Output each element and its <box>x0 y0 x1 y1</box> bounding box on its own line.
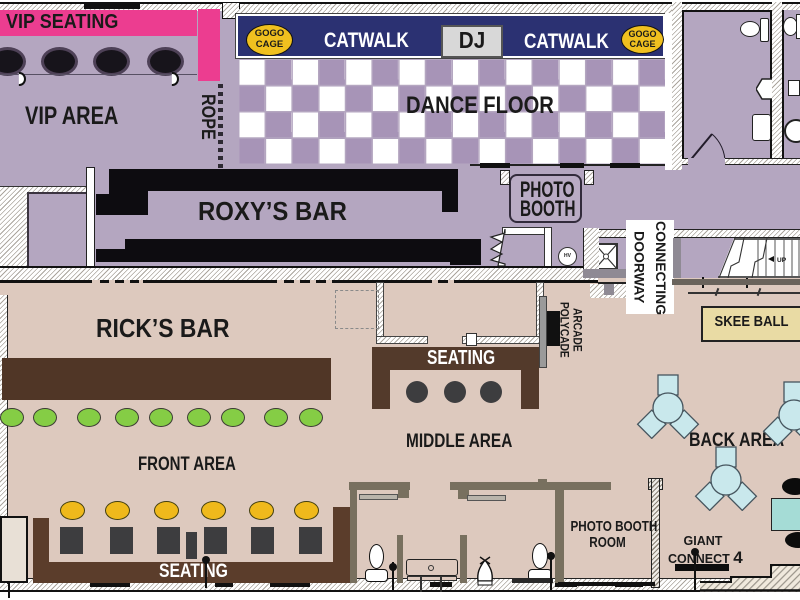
svg-text:UP: UP <box>777 257 787 264</box>
